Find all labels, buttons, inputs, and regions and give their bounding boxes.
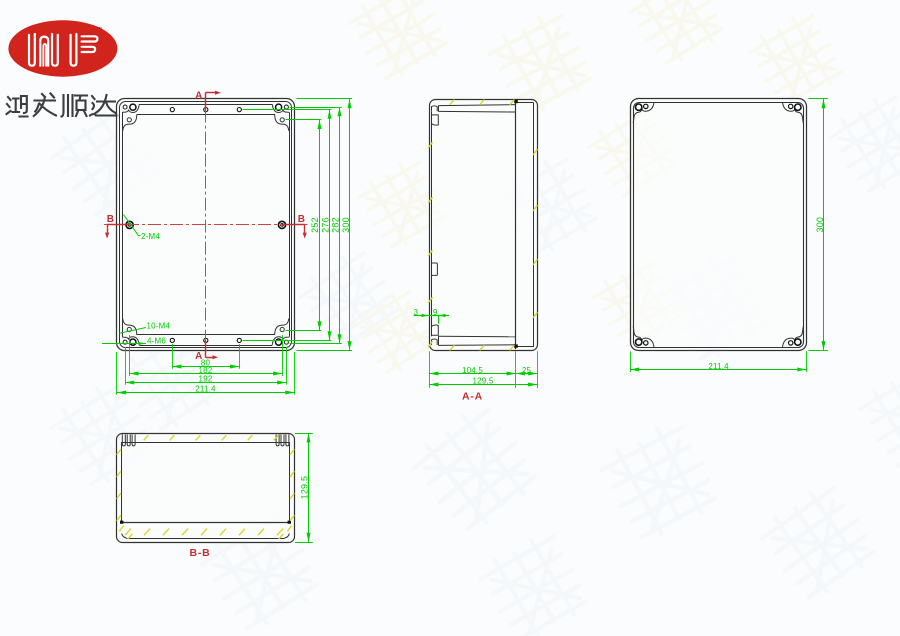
svg-text:192: 192: [199, 375, 213, 384]
svg-text:™: ™: [97, 27, 103, 33]
svg-text:182: 182: [199, 366, 213, 375]
svg-text:10-M4: 10-M4: [147, 321, 171, 330]
svg-text:300: 300: [341, 217, 351, 233]
svg-text:276: 276: [320, 217, 330, 233]
svg-text:252: 252: [310, 217, 320, 233]
svg-text:129.5: 129.5: [472, 376, 493, 385]
svg-text:A-A: A-A: [462, 391, 483, 403]
svg-text:300: 300: [815, 217, 825, 233]
svg-text:129.5: 129.5: [300, 476, 310, 500]
svg-text:4-M6: 4-M6: [147, 337, 166, 346]
svg-text:2-M4: 2-M4: [141, 232, 160, 241]
svg-text:B: B: [298, 214, 305, 225]
svg-text:211.4: 211.4: [195, 385, 216, 394]
svg-text:211.4: 211.4: [708, 362, 729, 371]
svg-text:282: 282: [331, 217, 341, 233]
svg-text:104.5: 104.5: [462, 366, 483, 375]
svg-text:25: 25: [522, 366, 532, 375]
svg-text:A: A: [195, 90, 202, 101]
svg-text:B: B: [107, 214, 114, 225]
svg-text:B-B: B-B: [189, 547, 210, 559]
